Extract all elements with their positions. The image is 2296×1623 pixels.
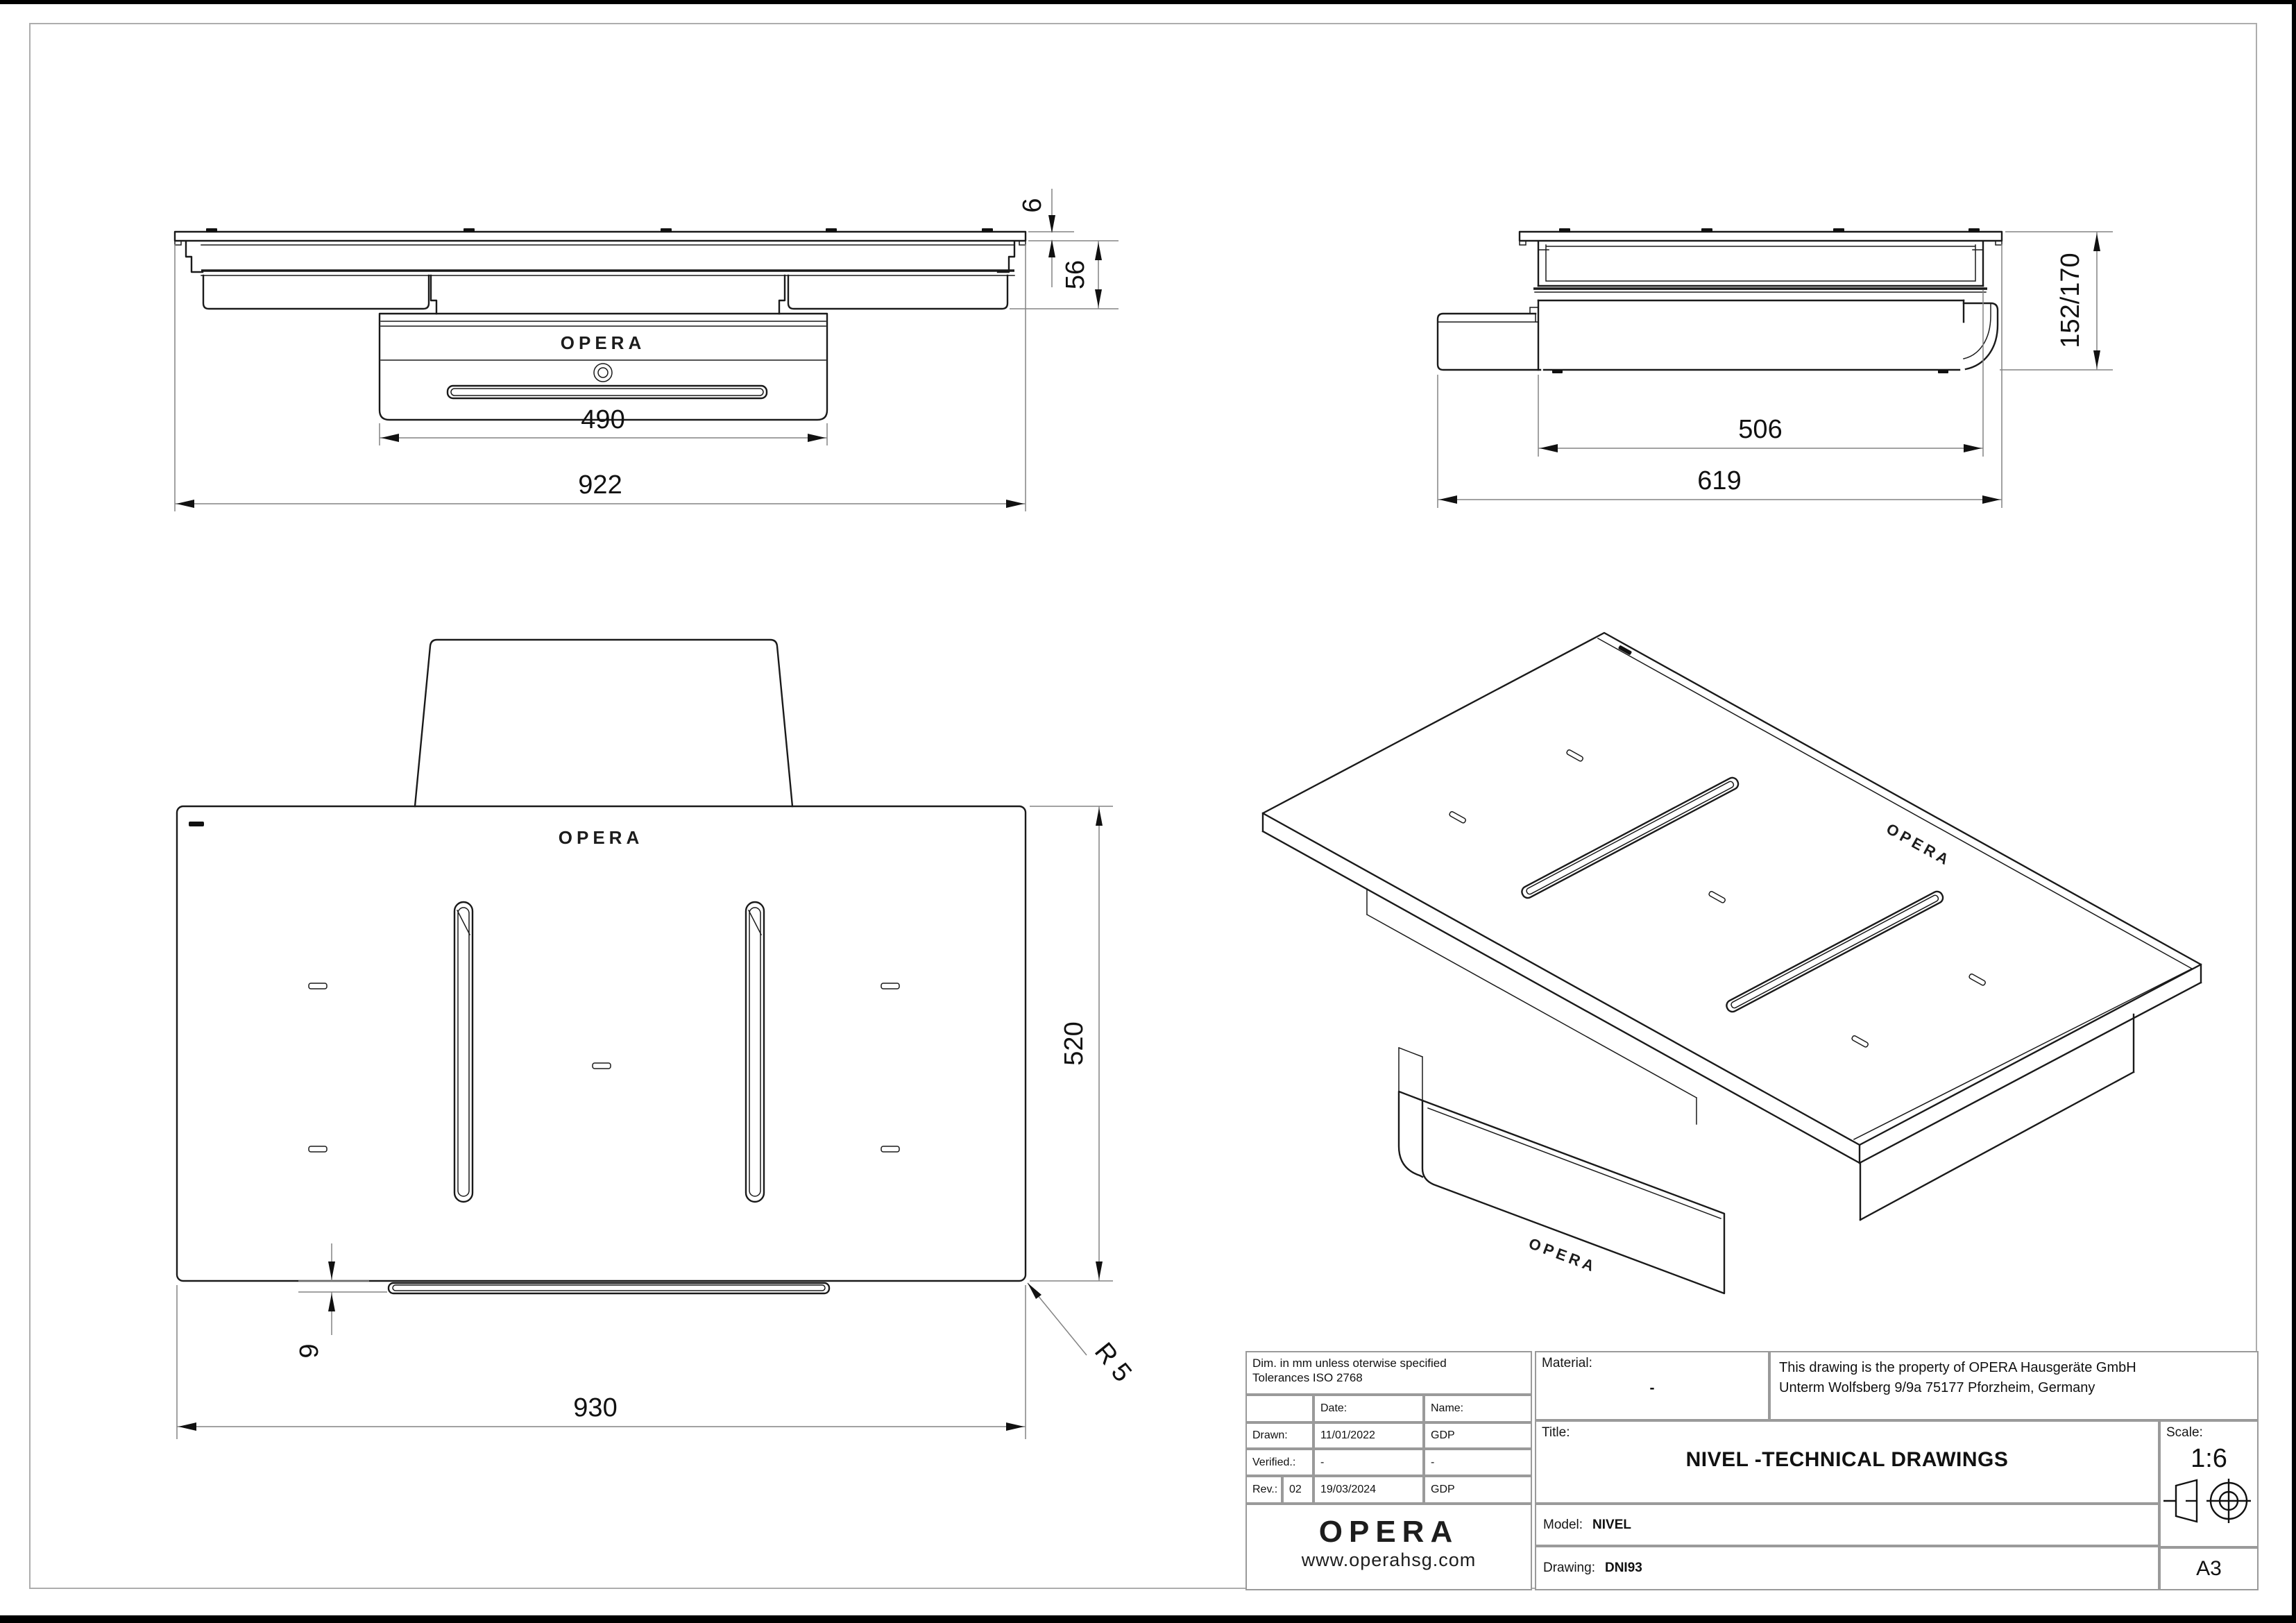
top-dim-width: 930 [573, 1393, 617, 1422]
drawing-number-cell: Drawing: DNI93 [1535, 1546, 2159, 1590]
drawing-title: NIVEL -TECHNICAL DRAWINGS [1536, 1448, 2158, 1472]
front-dim-overall-width: 922 [578, 470, 622, 500]
front-view: OPERA 490 922 6 56 [175, 189, 1119, 511]
zone-marker [881, 1146, 899, 1152]
side-tub-walls [1538, 241, 1983, 286]
top-dim-radius: R 5 [1089, 1337, 1137, 1387]
title-label: Title: [1536, 1422, 2158, 1444]
model-value: NIVEL [1592, 1518, 1631, 1533]
rev-name: GDP [1424, 1476, 1532, 1504]
top-panel [177, 806, 1026, 1281]
side-dim-overall-depth: 619 [1697, 466, 1741, 495]
top-intake-slot-right [746, 902, 764, 1202]
drawn-date: 11/01/2022 [1313, 1422, 1424, 1449]
zone-marker [1708, 891, 1726, 903]
front-drawer-slot [448, 386, 767, 398]
drawing-number: DNI93 [1605, 1561, 1642, 1576]
rev-date: 19/03/2024 [1313, 1476, 1424, 1504]
brand-cell: OPERA www.operahsg.com [1245, 1504, 1532, 1590]
zone-marker [1968, 974, 1986, 986]
front-left-hanger [186, 241, 203, 272]
side-dim-height: 152/170 [2056, 253, 2085, 348]
zone-marker [593, 1063, 611, 1069]
side-air-outlet [1964, 303, 1998, 369]
empty-cell [1245, 1395, 1313, 1422]
tolerance-note: Dim. in mm unless oterwise specified Tol… [1245, 1351, 1532, 1395]
top-brand-logo: OPERA [559, 827, 643, 848]
top-duct [415, 640, 792, 806]
verified-name: - [1424, 1449, 1532, 1476]
side-view: 152/170 506 619 [1438, 228, 2113, 508]
material-value: - [1536, 1380, 1768, 1397]
scale-value: 1:6 [2161, 1444, 2257, 1474]
isometric-view: OPERA OPERA [1263, 633, 2201, 1293]
iso-slot-left [1520, 776, 1740, 900]
model-cell: Model: NIVEL [1535, 1504, 2159, 1546]
front-dim-drawer-width: 490 [581, 405, 624, 434]
first-angle-projection-icon [2161, 1477, 2257, 1525]
iso-slot-right [1725, 890, 1945, 1014]
model-label: Model: [1543, 1518, 1583, 1533]
front-filter-drawer [380, 314, 827, 420]
property-notice-line1: This drawing is the property of OPERA Ha… [1779, 1358, 2249, 1378]
zone-marker [309, 1146, 327, 1152]
side-glass-panel [1520, 232, 2002, 241]
tolerance-note-line2: Tolerances ISO 2768 [1252, 1370, 1525, 1385]
iso-brand-logo-front: OPERA [1527, 1234, 1599, 1276]
front-right-hanger [998, 241, 1014, 272]
top-intake-slot-left [454, 902, 473, 1202]
zone-marker [1449, 811, 1466, 824]
iso-filter-drawer: OPERA [1399, 1048, 1724, 1293]
side-main-body [1538, 300, 1964, 370]
top-dim-depth: 520 [1060, 1021, 1089, 1065]
top-dim-trim: 9 [295, 1343, 324, 1358]
material-label: Material: [1536, 1352, 1768, 1375]
zone-marker [1851, 1035, 1869, 1048]
title-cell: Title: NIVEL -TECHNICAL DRAWINGS [1535, 1420, 2159, 1504]
iso-brand-logo-top: OPERA [1883, 819, 1954, 869]
top-view: OPERA 520 9 930 [177, 640, 1137, 1439]
side-dim-body-width: 506 [1738, 415, 1782, 444]
date-column-header: Date: [1313, 1395, 1424, 1422]
drawn-label: Drawn: [1245, 1422, 1313, 1449]
paper-size-cell: A3 [2159, 1547, 2259, 1590]
brand-website: www.operahsg.com [1247, 1549, 1531, 1571]
front-right-box [788, 275, 1007, 309]
drawing-label: Drawing: [1543, 1561, 1595, 1576]
rev-label: Rev.: [1245, 1476, 1282, 1504]
front-dim-body-height: 56 [1061, 260, 1090, 289]
property-notice-line2: Unterm Wolfsberg 9/9a 75177 Pforzheim, G… [1779, 1378, 2249, 1398]
zone-marker [309, 983, 327, 989]
zone-marker [881, 983, 899, 989]
scale-cell: Scale: 1:6 [2159, 1420, 2259, 1547]
iso-top-face [1263, 633, 2201, 1145]
material-cell: Material: - [1535, 1351, 1769, 1420]
drawn-name: GDP [1424, 1422, 1532, 1449]
front-glass-panel [175, 232, 1026, 241]
front-dim-glass-thickness: 6 [1018, 198, 1047, 212]
property-notice: This drawing is the property of OPERA Ha… [1769, 1351, 2259, 1420]
verified-label: Verified.: [1245, 1449, 1313, 1476]
tolerance-note-line1: Dim. in mm unless oterwise specified [1252, 1356, 1525, 1370]
front-brand-logo: OPERA [561, 332, 645, 353]
iso-under-body [1860, 1014, 2134, 1220]
zone-marker [1566, 749, 1583, 762]
name-column-header: Name: [1424, 1395, 1532, 1422]
front-left-box [203, 275, 429, 309]
verified-date: - [1313, 1449, 1424, 1476]
brand-logo: OPERA [1247, 1515, 1531, 1549]
rev-number: 02 [1282, 1476, 1313, 1504]
scale-label: Scale: [2161, 1422, 2257, 1444]
